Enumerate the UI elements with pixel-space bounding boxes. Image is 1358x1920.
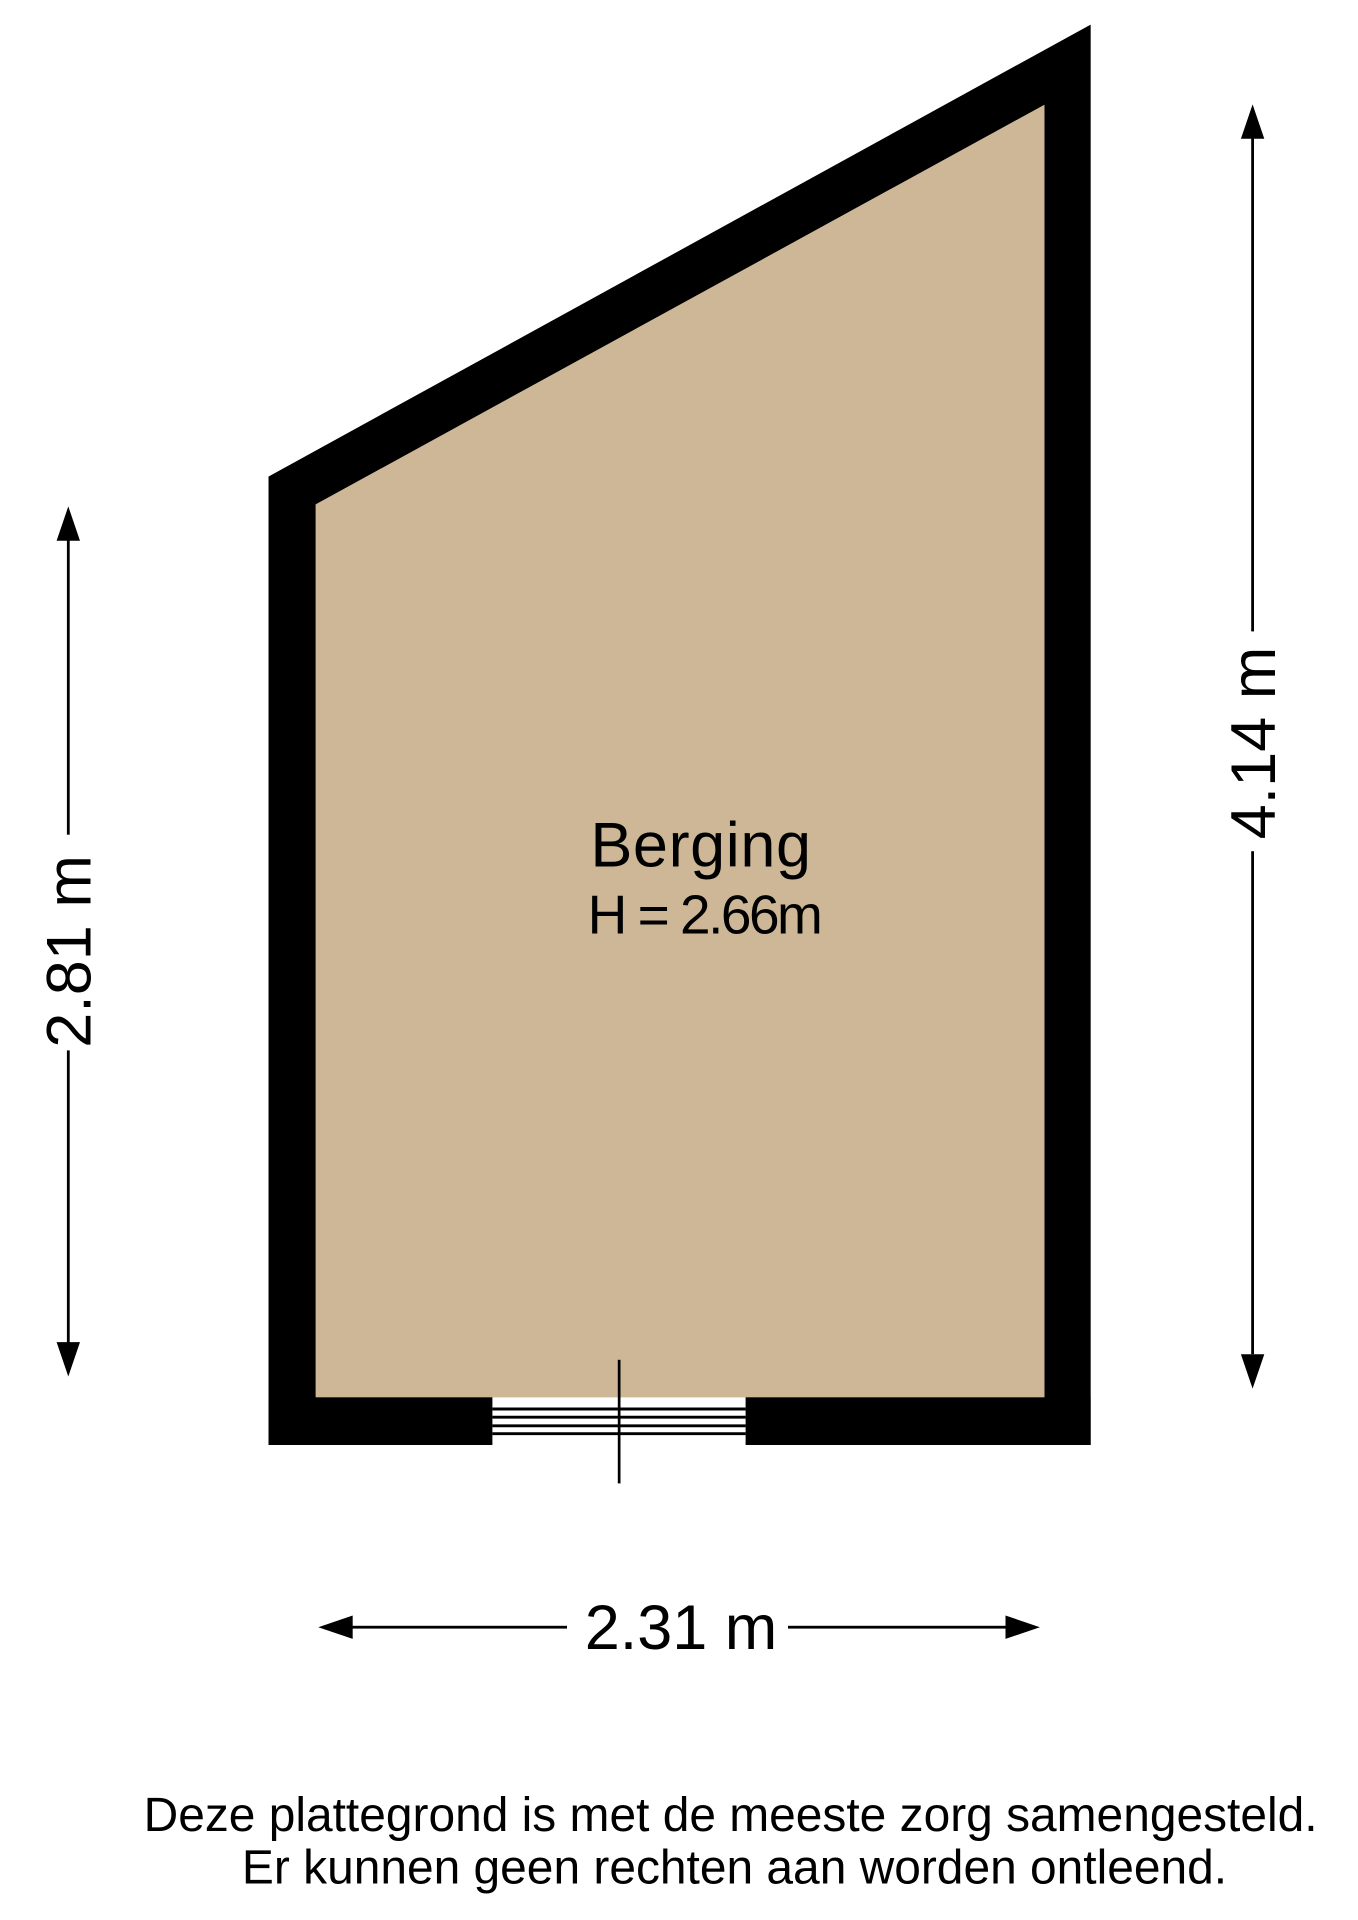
svg-text:Er kunnen geen rechten aan wor: Er kunnen geen rechten aan worden ontlee… bbox=[242, 1841, 1227, 1894]
svg-text:H = 2.66m: H = 2.66m bbox=[588, 884, 821, 946]
svg-text:2.31 m: 2.31 m bbox=[585, 1593, 778, 1663]
svg-text:4.14 m: 4.14 m bbox=[1219, 647, 1289, 840]
svg-text:Berging: Berging bbox=[590, 811, 811, 881]
svg-text:Deze plattegrond is met de mee: Deze plattegrond is met de meeste zorg s… bbox=[144, 1789, 1318, 1842]
svg-text:2.81 m: 2.81 m bbox=[35, 855, 105, 1048]
